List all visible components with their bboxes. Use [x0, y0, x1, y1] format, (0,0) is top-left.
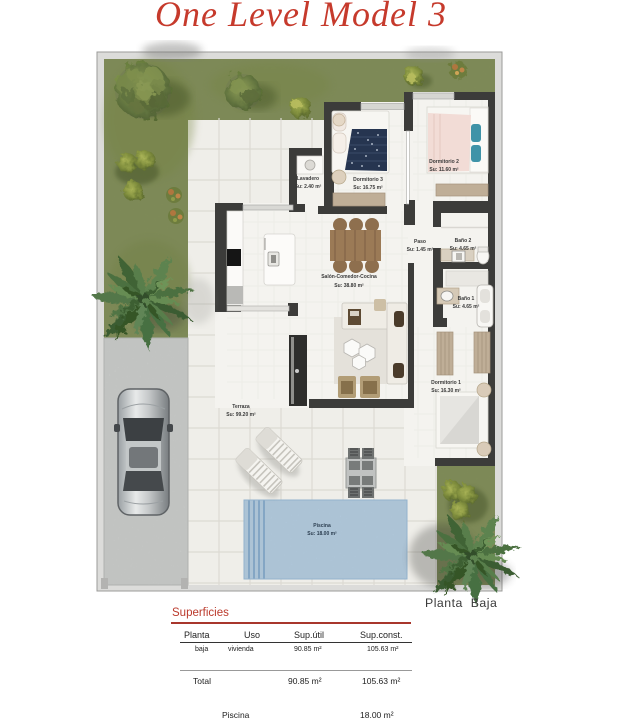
svg-text:Piscina: Piscina	[313, 523, 331, 529]
svg-text:Baño 1: Baño 1	[458, 296, 475, 302]
svg-text:Su: 11.60 m²: Su: 11.60 m²	[429, 167, 459, 173]
svg-text:Su: 1.45 m²: Su: 1.45 m²	[407, 247, 434, 253]
svg-text:Dormitorio 1: Dormitorio 1	[431, 380, 461, 386]
svg-text:Dormitorio 3: Dormitorio 3	[353, 177, 383, 183]
svg-text:Terraza: Terraza	[232, 404, 250, 410]
svg-text:Su: 4.65 m²: Su: 4.65 m²	[450, 246, 477, 252]
svg-text:Su: 2.40 m²: Su: 2.40 m²	[295, 184, 322, 190]
svg-text:Su: 99.20 m²: Su: 99.20 m²	[226, 412, 256, 418]
svg-text:Su: 16.30 m²: Su: 16.30 m²	[431, 388, 461, 394]
svg-text:Su: 18.00 m²: Su: 18.00 m²	[307, 531, 337, 537]
svg-text:Dormitorio 2: Dormitorio 2	[429, 159, 459, 165]
svg-text:Baño 2: Baño 2	[455, 238, 472, 244]
svg-text:Su: 16.75 m²: Su: 16.75 m²	[353, 185, 383, 191]
svg-text:Su: 4.65 m²: Su: 4.65 m²	[453, 304, 480, 310]
svg-text:Lavadero: Lavadero	[297, 176, 319, 182]
svg-text:Paso: Paso	[414, 239, 426, 245]
svg-text:Su: 38.80 m²: Su: 38.80 m²	[334, 283, 364, 289]
svg-text:Salón-Comedor-Cocina: Salón-Comedor-Cocina	[321, 274, 377, 280]
